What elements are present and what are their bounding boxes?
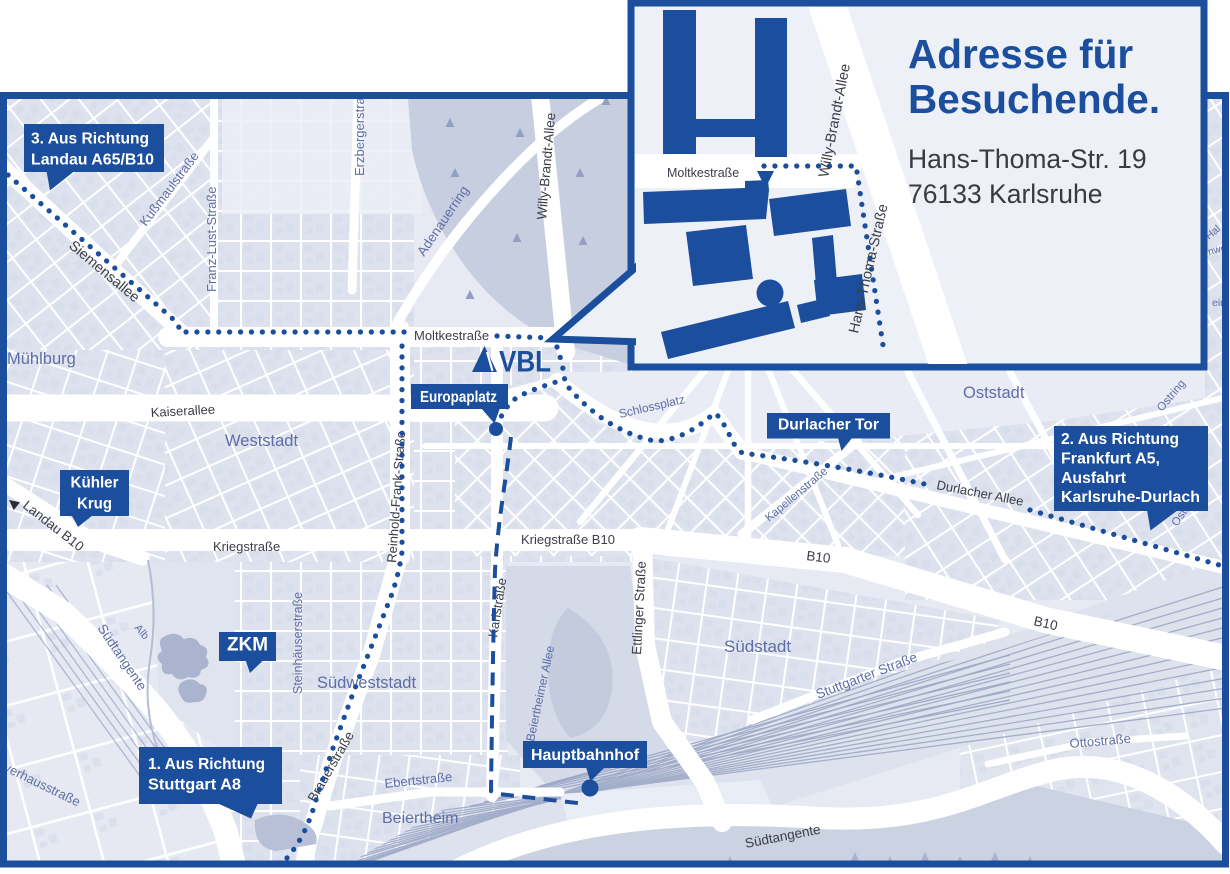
svg-text:Oststadt: Oststadt [963, 384, 1025, 402]
svg-text:Südweststadt: Südweststadt [317, 674, 416, 692]
svg-text:Kühler: Kühler [71, 475, 119, 492]
svg-text:1. Aus Richtung: 1. Aus Richtung [148, 756, 265, 773]
svg-text:Europaplatz: Europaplatz [420, 389, 497, 406]
svg-text:Landau A65/B10: Landau A65/B10 [31, 152, 154, 169]
svg-text:Hans-Thoma-Str. 19: Hans-Thoma-Str. 19 [908, 144, 1147, 174]
svg-text:Adresse für: Adresse für [908, 31, 1133, 77]
svg-text:VBL: VBL [499, 346, 551, 379]
svg-text:Karlsruhe-Durlach: Karlsruhe-Durlach [1061, 489, 1200, 506]
svg-text:Hauptbahnhof: Hauptbahnhof [531, 747, 640, 764]
svg-text:Krug: Krug [77, 496, 112, 513]
svg-text:Steinhäuserstraße: Steinhäuserstraße [291, 592, 305, 694]
svg-text:Moltkestraße: Moltkestraße [414, 328, 489, 343]
svg-text:Weststadt: Weststadt [225, 432, 298, 450]
svg-text:Beiertheim: Beiertheim [382, 810, 458, 827]
svg-text:Kriegstraße B10: Kriegstraße B10 [521, 532, 615, 547]
svg-text:Ausfahrt: Ausfahrt [1061, 470, 1127, 487]
svg-text:B10: B10 [806, 548, 832, 566]
svg-text:Mühlburg: Mühlburg [7, 350, 76, 368]
svg-text:3. Aus Richtung: 3. Aus Richtung [31, 131, 149, 148]
svg-text:ZKM: ZKM [227, 635, 268, 656]
svg-text:Südstadt: Südstadt [724, 637, 791, 656]
svg-text:Stuttgart A8: Stuttgart A8 [148, 777, 241, 794]
svg-text:Moltkestraße: Moltkestraße [667, 166, 739, 180]
svg-text:76133 Karlsruhe: 76133 Karlsruhe [908, 179, 1102, 209]
svg-text:Durlacher Tor: Durlacher Tor [778, 417, 879, 434]
svg-text:Besuchende.: Besuchende. [908, 76, 1160, 122]
svg-text:2. Aus Richtung: 2. Aus Richtung [1061, 431, 1179, 448]
svg-text:Franz-Lust-Straße: Franz-Lust-Straße [204, 187, 219, 292]
svg-text:Kriegstraße: Kriegstraße [213, 539, 280, 554]
svg-text:Frankfurt A5,: Frankfurt A5, [1061, 451, 1160, 468]
